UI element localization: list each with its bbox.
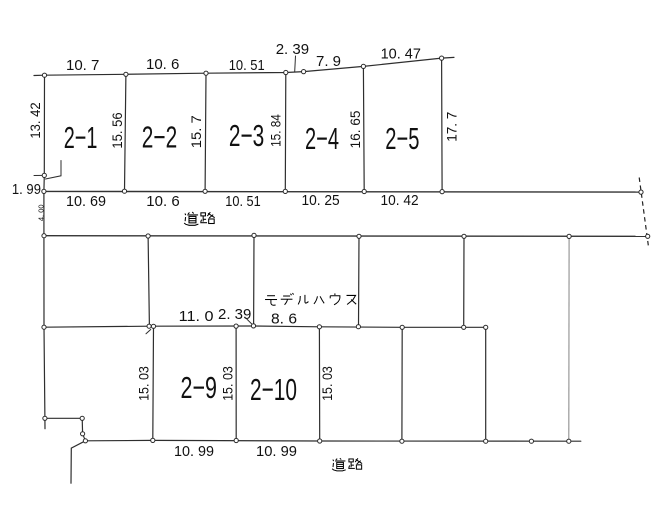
svg-text:15. 7: 15. 7: [189, 115, 204, 148]
svg-text:15. 03: 15. 03: [320, 366, 335, 401]
svg-text:7. 9: 7. 9: [316, 53, 341, 70]
svg-text:2−5: 2−5: [385, 121, 419, 156]
svg-text:1. 99: 1. 99: [12, 181, 41, 198]
svg-text:10. 42: 10. 42: [381, 192, 419, 209]
svg-text:16. 65: 16. 65: [348, 111, 363, 149]
svg-text:10. 6: 10. 6: [146, 193, 179, 210]
svg-text:2−3: 2−3: [229, 118, 264, 153]
svg-text:4. 00: 4. 00: [37, 204, 46, 221]
svg-text:10. 6: 10. 6: [146, 56, 179, 73]
svg-text:2−1: 2−1: [64, 120, 98, 155]
svg-text:17. 7: 17. 7: [445, 112, 460, 142]
svg-text:15. 56: 15. 56: [110, 112, 125, 148]
svg-text:10. 25: 10. 25: [302, 192, 340, 209]
svg-text:10. 69: 10. 69: [66, 193, 106, 210]
svg-text:2−9: 2−9: [181, 370, 218, 405]
svg-text:15. 84: 15. 84: [268, 114, 283, 147]
svg-text:15. 03: 15. 03: [220, 366, 235, 401]
svg-text:10. 51: 10. 51: [225, 193, 260, 210]
svg-text:2−2: 2−2: [142, 119, 177, 154]
svg-text:10. 51: 10. 51: [229, 57, 265, 74]
svg-text:13. 42: 13. 42: [28, 102, 43, 138]
svg-text:10. 99: 10. 99: [256, 443, 297, 460]
svg-text:15. 03: 15. 03: [136, 366, 151, 401]
svg-text:2. 39: 2. 39: [218, 306, 251, 323]
svg-text:11. 0: 11. 0: [179, 308, 214, 325]
svg-text:8. 6: 8. 6: [271, 310, 297, 327]
svg-text:10. 99: 10. 99: [174, 443, 214, 460]
svg-text:10. 7: 10. 7: [66, 57, 99, 74]
svg-text:10. 47: 10. 47: [381, 46, 421, 63]
svg-text:2−4: 2−4: [305, 121, 339, 156]
svg-text:2. 39: 2. 39: [276, 41, 309, 58]
svg-text:2−10: 2−10: [250, 372, 297, 407]
